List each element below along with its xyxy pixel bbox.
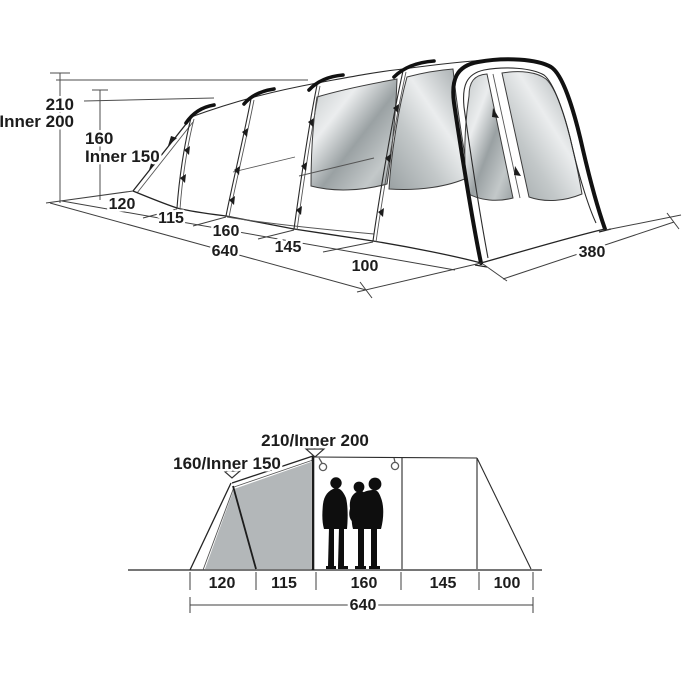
tent-dimensions-diagram: 210 Inner 200 160 Inner 150 120 115 160 …	[0, 0, 700, 700]
top-porch-height: 160	[85, 129, 113, 148]
top-seg-120: 120	[109, 196, 136, 213]
top-seg-160: 160	[213, 223, 240, 240]
side-view: 210/Inner 200 160/Inner 150 120 115 160 …	[128, 431, 542, 614]
side-seg-120: 120	[209, 575, 236, 592]
side-seg-100: 100	[494, 575, 521, 592]
hook-ring-icon	[391, 462, 398, 469]
rear-slope	[477, 458, 531, 569]
side-peak-height: 210/Inner 200	[261, 431, 369, 450]
side-seg-160: 160	[351, 575, 378, 592]
top-porch-inner: Inner 150	[85, 147, 160, 166]
front-face	[453, 59, 611, 267]
roof-line	[313, 457, 477, 458]
top-seg-100: 100	[352, 258, 379, 275]
top-seg-145: 145	[275, 239, 302, 256]
side-seg-145: 145	[430, 575, 457, 592]
top-height-inner: Inner 200	[0, 112, 74, 131]
diagram-svg: 210 Inner 200 160 Inner 150 120 115 160 …	[0, 0, 700, 700]
people-silhouettes	[322, 477, 383, 569]
side-total-length: 640	[350, 597, 377, 614]
peak-marker-icon	[306, 449, 324, 457]
side-seg-115: 115	[271, 575, 297, 592]
lantern-hooks	[319, 458, 399, 471]
bedroom-area	[205, 462, 311, 569]
top-front-width: 380	[579, 244, 606, 261]
top-view: 210 Inner 200 160 Inner 150 120 115 160 …	[0, 59, 681, 298]
top-total-length: 640	[212, 243, 239, 260]
hook-ring-icon	[319, 463, 326, 470]
side-porch-height: 160/Inner 150	[173, 454, 281, 473]
top-seg-115: 115	[158, 210, 184, 227]
